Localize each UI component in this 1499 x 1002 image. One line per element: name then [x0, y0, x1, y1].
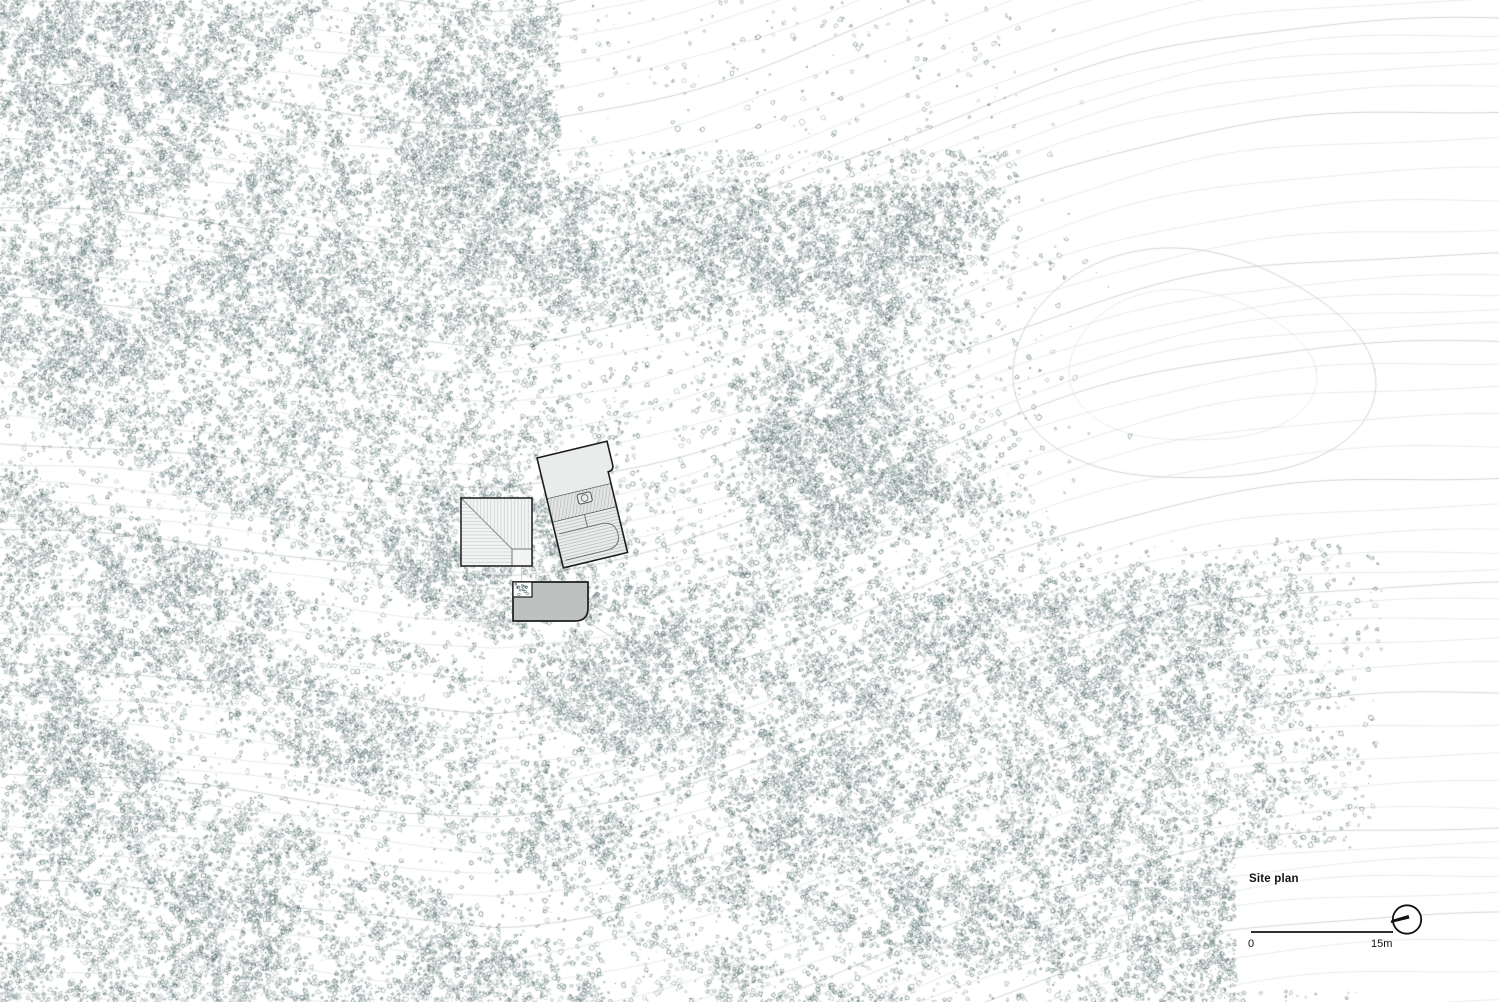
- scale-end-label: 15m: [1371, 938, 1392, 950]
- site-plan-sheet: Site plan 0 15m: [0, 0, 1499, 1002]
- site-plan-label: Site plan: [1249, 873, 1299, 885]
- scale-start-label: 0: [1248, 938, 1254, 950]
- north-arrow-icon: [1389, 901, 1426, 938]
- scale-bar-line: [1251, 931, 1393, 933]
- roof-outbuilding: [461, 498, 532, 566]
- buildings-overlay: [0, 0, 1499, 1002]
- lower-annex: [513, 582, 588, 621]
- roof-flat-section: [512, 549, 532, 566]
- main-house: [537, 441, 633, 568]
